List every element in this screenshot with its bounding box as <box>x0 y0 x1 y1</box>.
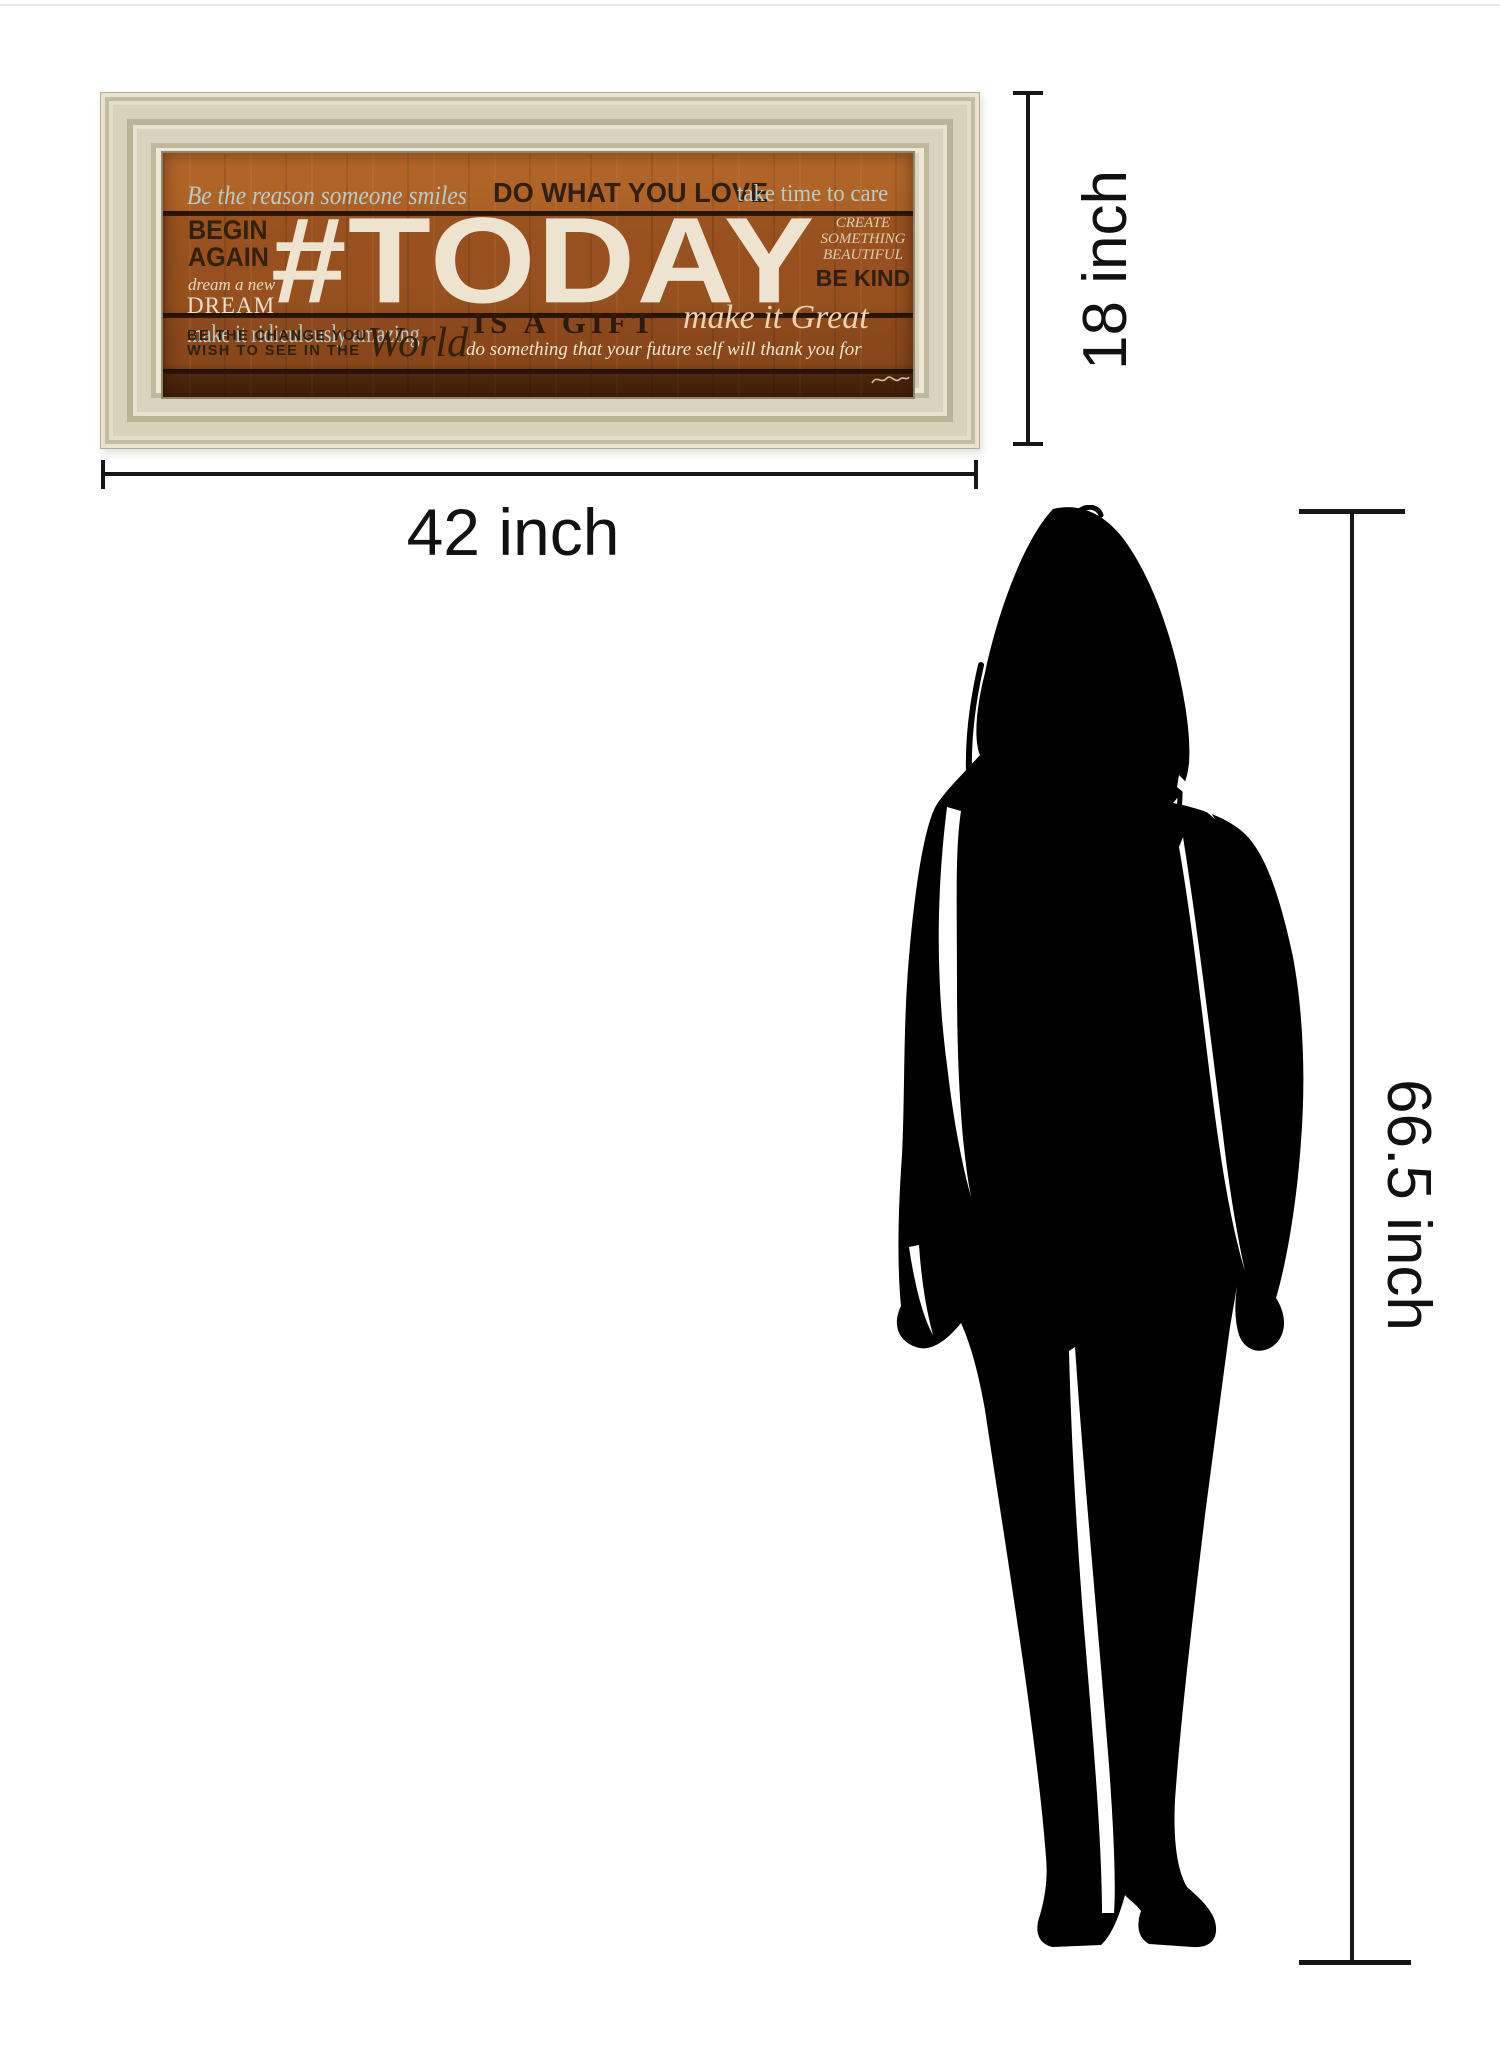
plank-divider <box>163 369 913 374</box>
artist-signature-icon <box>869 372 911 388</box>
art-text-be-the-change: BE THE CHANGE YOU WISH TO SEE IN THE <box>187 329 368 358</box>
height-dimension-label: 18 inch <box>1070 110 1142 430</box>
art-text-is-a-gift: IS A GIFT <box>473 305 658 341</box>
person-dimension-label: 66.5 inch <box>1372 1045 1444 1365</box>
width-dimension-cap-left <box>101 460 105 489</box>
art-text-create-something-beautiful: CREATE SOMETHING BEAUTIFUL <box>815 215 911 263</box>
picture-frame: Be the reason someone smiles DO WHAT YOU… <box>100 92 980 449</box>
product-dimension-diagram: Be the reason someone smiles DO WHAT YOU… <box>0 0 1500 2048</box>
art-text-begin-again: BEGIN AGAIN <box>188 217 269 271</box>
image-top-edge-line <box>0 4 1500 6</box>
width-dimension-label: 42 inch <box>378 494 648 570</box>
art-text-world: World <box>367 319 468 367</box>
width-dimension-cap-right <box>974 460 978 489</box>
art-text-be-the-change-line2: WISH TO SEE IN THE <box>187 344 368 359</box>
height-dimension-cap-top <box>1013 91 1043 95</box>
art-text-be-the-change-line1: BE THE CHANGE YOU <box>187 329 368 344</box>
artwork-print: Be the reason someone smiles DO WHAT YOU… <box>163 153 913 397</box>
art-text-today: #TODAY <box>271 211 816 311</box>
wood-plank-bottom <box>163 374 913 397</box>
woman-silhouette <box>885 505 1330 1950</box>
width-dimension-line <box>103 472 978 476</box>
art-text-make-it-great: make it Great <box>683 299 869 337</box>
art-text-future-self: do something that your future self will … <box>466 339 862 361</box>
person-dimension-line <box>1350 512 1354 1964</box>
art-text-be-kind: BE KIND <box>815 265 911 292</box>
height-dimension-cap-bottom <box>1013 442 1043 446</box>
height-dimension-line <box>1026 93 1030 445</box>
art-text-dream: DREAM <box>187 293 275 319</box>
person-dimension-cap-bottom <box>1299 1960 1411 1965</box>
art-text-dream-a-new: dream a new <box>188 275 275 295</box>
